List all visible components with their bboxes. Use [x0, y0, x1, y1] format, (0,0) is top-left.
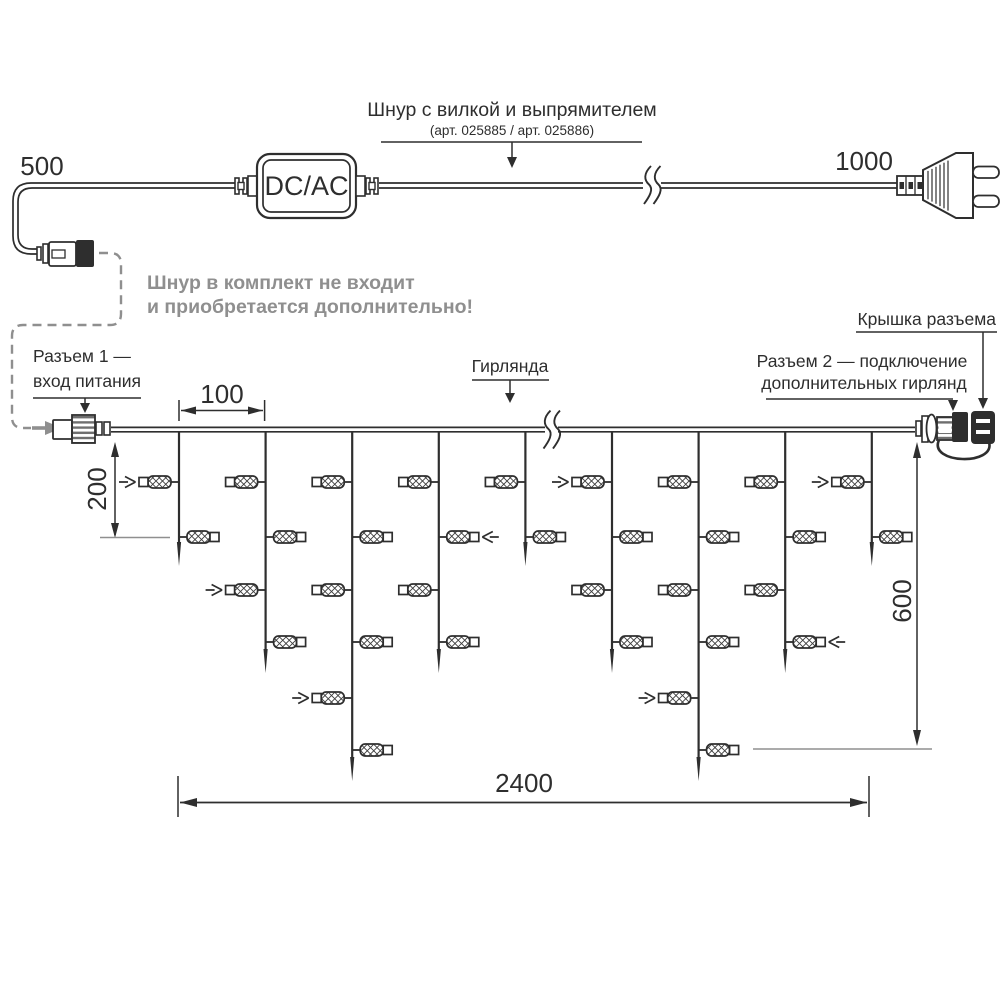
garland-drop-tip	[783, 649, 787, 673]
lamp-cap	[832, 478, 841, 487]
lamp-arrow-icon	[812, 477, 829, 488]
lamp	[745, 476, 785, 488]
garland-drop-tip	[437, 649, 441, 673]
lamp	[312, 584, 352, 596]
lamp-body	[754, 476, 777, 488]
lamp-cap	[556, 533, 565, 542]
lamp-body	[841, 476, 864, 488]
garland-wiring-diagram: 500 DC/AC	[0, 0, 1000, 1000]
lamp	[312, 692, 352, 704]
lamp-arrow-icon	[206, 585, 223, 596]
lamp-cap	[659, 694, 668, 703]
callout-arrow-head	[507, 157, 517, 168]
input-ribbed-body	[72, 415, 95, 443]
lamp	[699, 636, 739, 648]
lamp-body	[793, 531, 816, 543]
lamp-cap	[399, 478, 408, 487]
garland-drop-tip	[177, 542, 181, 566]
lamp	[439, 636, 479, 648]
lamp-body	[447, 636, 470, 648]
lamp-body	[581, 584, 604, 596]
lamp-cap	[816, 533, 825, 542]
garland-callout: Гирлянда	[472, 356, 549, 403]
lamp-cap	[470, 638, 479, 647]
lamp	[139, 476, 179, 488]
lamp-body	[360, 531, 383, 543]
dim-arrow-head	[850, 798, 867, 807]
lamp	[572, 584, 612, 596]
connector2-callout: Разъем 2 — подключение дополнительных ги…	[757, 351, 968, 411]
lamp-body	[707, 744, 730, 756]
lamp-arrow-icon	[639, 693, 656, 704]
dim-100: 100	[179, 379, 265, 421]
lamp-cap	[312, 586, 321, 595]
lamp-cap	[383, 746, 392, 755]
lamp-cap	[383, 638, 392, 647]
lamp	[179, 531, 219, 543]
dim-arrow-head	[913, 730, 921, 746]
lamp-body	[533, 531, 556, 543]
plug-relief-notch	[918, 182, 923, 189]
lamp-cap	[730, 533, 739, 542]
garland-drop-tip	[523, 542, 527, 566]
lamp-cap	[816, 638, 825, 647]
lamp	[699, 531, 739, 543]
dc-ac-converter: DC/AC	[235, 154, 378, 218]
lamp-body	[707, 531, 730, 543]
lamp	[266, 531, 306, 543]
lamp-body	[360, 636, 383, 648]
lamp-body	[274, 531, 297, 543]
connector-rib	[37, 247, 41, 260]
lamp	[612, 636, 652, 648]
dashed-route	[12, 253, 121, 428]
lamp-arrow-icon	[552, 477, 569, 488]
lamp	[659, 476, 699, 488]
cord-note-line1: Шнур в комплект не входит	[147, 272, 415, 294]
lamp-body	[235, 476, 258, 488]
lamp-cap	[485, 478, 494, 487]
connector-cap	[971, 411, 995, 444]
dim-100-label: 100	[200, 379, 243, 409]
lamp-cap	[903, 533, 912, 542]
lamp-body	[754, 584, 777, 596]
coupler-bridge	[238, 183, 244, 190]
lamp	[699, 744, 739, 756]
plug-prong	[973, 196, 999, 208]
lamp-body	[668, 476, 691, 488]
end-body-slot	[939, 424, 952, 433]
lamp	[352, 744, 392, 756]
lamp-cap	[730, 746, 739, 755]
mains-plug	[897, 153, 999, 218]
lamp-cap	[399, 586, 408, 595]
connector1-label-line1: Разъем 1 —	[33, 346, 131, 366]
garland-drop-tip	[870, 542, 874, 566]
lamp	[352, 636, 392, 648]
lamp-body	[620, 531, 643, 543]
input-end-cap	[53, 420, 72, 439]
dim-2400-label: 2400	[495, 768, 553, 798]
lamp-body	[707, 636, 730, 648]
cord-subtitle: (арт. 025885 / арт. 025886)	[430, 123, 594, 138]
lamp-body	[447, 531, 470, 543]
lamp-body	[668, 692, 691, 704]
lamp-body	[668, 584, 691, 596]
lamp	[399, 476, 439, 488]
end-coupler	[916, 421, 921, 436]
lamp-cap	[659, 478, 668, 487]
coupler-bridge	[369, 183, 375, 190]
callout-arrow-head	[948, 400, 958, 411]
cap-label: Крышка разъема	[857, 309, 996, 329]
lamp-cap	[297, 533, 306, 542]
lamp-cap	[745, 478, 754, 487]
lamp	[832, 476, 872, 488]
lamp-cap	[745, 586, 754, 595]
dim-600: 600	[753, 442, 932, 749]
lamp	[226, 584, 266, 596]
lamp-cap	[470, 533, 479, 542]
plug-prong	[973, 167, 999, 179]
lamp-body	[880, 531, 903, 543]
dim-500-label: 500	[20, 151, 63, 181]
lamp-body	[408, 584, 431, 596]
lamp-body	[321, 584, 344, 596]
dim-arrow-head	[111, 523, 119, 538]
end-flange	[927, 415, 937, 443]
cord-wire-left-inner	[18, 188, 236, 249]
dim-200-label: 200	[82, 467, 112, 510]
lamp-cap	[643, 533, 652, 542]
dim-arrow-head	[248, 407, 263, 415]
lamp-cap	[312, 694, 321, 703]
lamp-cap	[210, 533, 219, 542]
lamp	[226, 476, 266, 488]
dim-arrow-head	[180, 798, 197, 807]
lamp-cap	[312, 478, 321, 487]
cord-note-line2: и приобретается дополнительно!	[147, 296, 473, 318]
lamp-body	[274, 636, 297, 648]
lamp	[485, 476, 525, 488]
lamp	[266, 636, 306, 648]
lamp-arrow-icon	[829, 637, 846, 648]
converter-flange-right	[356, 176, 365, 196]
garland-drop-tip	[697, 757, 701, 781]
converter-label: DC/AC	[264, 171, 348, 201]
lamp	[872, 531, 912, 543]
lamp-body	[494, 476, 517, 488]
lamp-body	[321, 692, 344, 704]
wire-break-icon	[644, 166, 661, 204]
connector-slot	[52, 250, 65, 258]
lamp-body	[620, 636, 643, 648]
callout-arrow-head	[978, 398, 988, 409]
lamp-body	[235, 584, 258, 596]
garland-drop-tip	[350, 757, 354, 781]
cord-title-callout: Шнур с вилкой и выпрямителем (арт. 02588…	[367, 99, 656, 168]
garland-end-connector	[916, 411, 995, 459]
lamp	[525, 531, 565, 543]
lamp	[399, 584, 439, 596]
dim-600-label: 600	[887, 579, 917, 622]
lamp	[439, 531, 479, 543]
input-coupler	[104, 422, 110, 435]
garland-drop-tip	[264, 649, 268, 673]
lamp-body	[148, 476, 171, 488]
lamp	[352, 531, 392, 543]
lamp-body	[187, 531, 210, 543]
lamp-cap	[730, 638, 739, 647]
lamp-cap	[297, 638, 306, 647]
connector-black-cap	[76, 240, 94, 267]
input-coupler	[96, 422, 102, 435]
cap-slit	[976, 430, 990, 434]
connector1-label-line2: вход питания	[33, 371, 141, 391]
lamp-cap	[572, 586, 581, 595]
lamp-body	[321, 476, 344, 488]
lamp-arrow-icon	[292, 693, 309, 704]
lamp-arrow-icon	[482, 532, 499, 543]
lamp-body	[581, 476, 604, 488]
connector2-label-line1: Разъем 2 — подключение	[757, 351, 968, 371]
connector1-callout: Разъем 1 — вход питания	[33, 346, 141, 413]
lamp-cap	[383, 533, 392, 542]
cap-body	[971, 411, 995, 444]
dim-1000-label: 1000	[835, 146, 893, 176]
converter-flange-left	[248, 176, 257, 196]
lamp	[745, 584, 785, 596]
garland-input-connector	[53, 415, 110, 443]
dim-arrow-head	[181, 407, 196, 415]
dim-2400: 2400	[178, 768, 869, 817]
lamp	[659, 692, 699, 704]
lamp-cap	[643, 638, 652, 647]
lamp-arrow-icon	[119, 477, 136, 488]
lamp	[785, 636, 825, 648]
dim-200: 200	[82, 442, 170, 538]
lamp-body	[408, 476, 431, 488]
cap-slit	[976, 419, 990, 423]
dim-arrow-head	[913, 442, 921, 458]
lamp-cap	[226, 586, 235, 595]
plug-relief-notch	[909, 182, 914, 189]
wire-break-icon	[544, 411, 561, 449]
lamp	[312, 476, 352, 488]
connector2-label-line2: дополнительных гирлянд	[761, 373, 966, 393]
garland-assembly: Разъем 1 — вход питания Гирлянда Крышка …	[33, 309, 997, 817]
lamp-cap	[139, 478, 148, 487]
lamp-body	[793, 636, 816, 648]
lamp-cap	[659, 586, 668, 595]
cord-output-connector	[37, 240, 94, 267]
plug-relief-notch	[900, 182, 905, 189]
cord-title: Шнур с вилкой и выпрямителем	[367, 99, 656, 121]
end-black-block	[952, 412, 968, 442]
callout-arrow-head	[505, 393, 515, 403]
lamp	[785, 531, 825, 543]
lamp	[659, 584, 699, 596]
garland-label: Гирлянда	[472, 356, 549, 376]
lamp-cap	[572, 478, 581, 487]
callout-arrow-head	[80, 403, 90, 413]
garland-drop-tip	[610, 649, 614, 673]
lamp-body	[360, 744, 383, 756]
lamp	[572, 476, 612, 488]
connector-rib	[43, 244, 48, 263]
lamp-cap	[226, 478, 235, 487]
dim-arrow-head	[111, 442, 119, 457]
lamp	[612, 531, 652, 543]
